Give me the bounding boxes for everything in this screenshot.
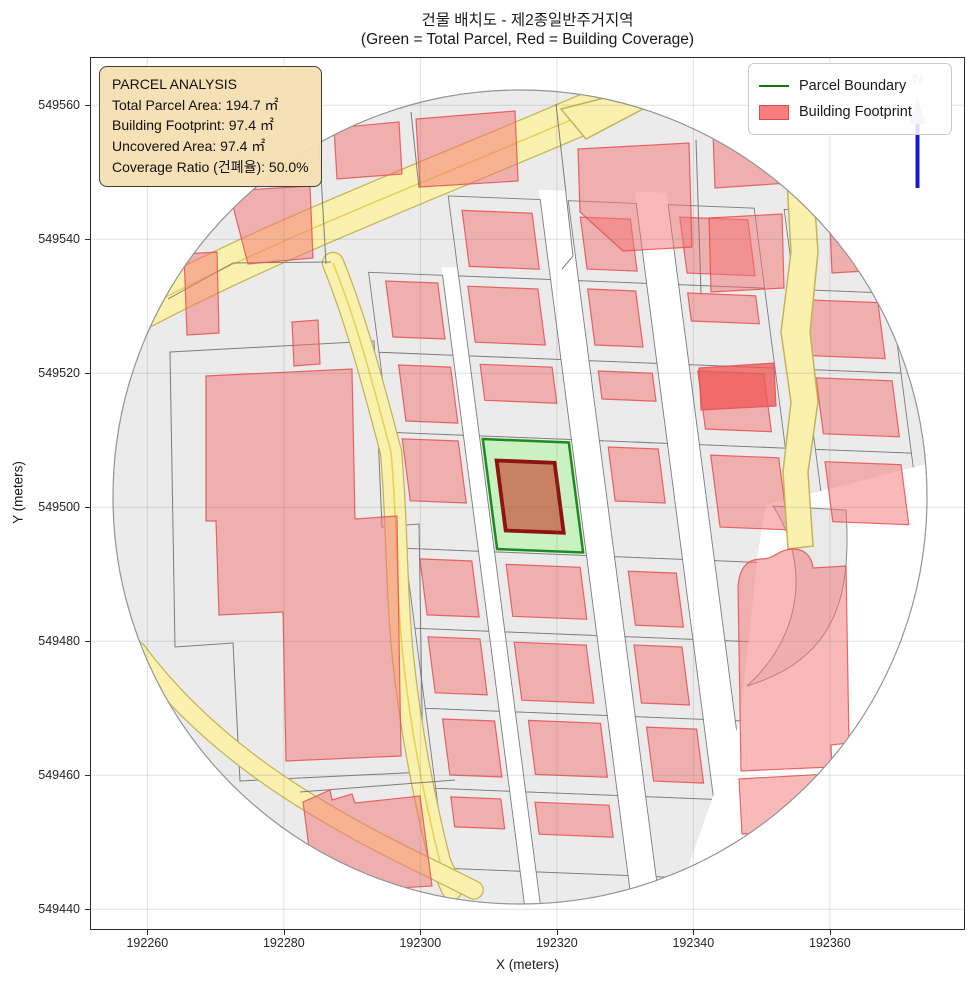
map-canvas: N xyxy=(91,58,964,929)
y-axis-label: Y (meters) xyxy=(11,448,26,538)
y-tick-label: 549560 xyxy=(28,98,80,112)
x-tick-label: 192280 xyxy=(263,936,305,950)
legend-label: Building Footprint xyxy=(799,104,912,120)
legend-item-building-footprint: Building Footprint xyxy=(759,99,941,125)
plot-subtitle: (Green = Total Parcel, Red = Building Co… xyxy=(90,31,965,49)
plot-area: N xyxy=(90,57,965,930)
y-tick-mark xyxy=(85,775,90,776)
x-tick-mark xyxy=(693,930,694,935)
y-tick-label: 549500 xyxy=(28,500,80,514)
x-tick-label: 192300 xyxy=(399,936,441,950)
analysis-line-coverage: Coverage Ratio (건폐율): 50.0% xyxy=(112,157,309,178)
analysis-line-title: PARCEL ANALYSIS xyxy=(112,74,309,95)
y-tick-label: 549460 xyxy=(28,768,80,782)
x-tick-label: 192360 xyxy=(809,936,851,950)
y-tick-mark xyxy=(85,239,90,240)
building-footprint-patch-swatch xyxy=(759,105,789,120)
x-tick-mark xyxy=(284,930,285,935)
x-tick-label: 192260 xyxy=(126,936,168,950)
parcel-analysis-box: PARCEL ANALYSIS Total Parcel Area: 194.7… xyxy=(99,66,322,187)
x-tick-mark xyxy=(420,930,421,935)
analysis-line-uncovered: Uncovered Area: 97.4 ㎡ xyxy=(112,136,309,157)
plot-title: 건물 배치도 - 제2종일반주거지역 xyxy=(90,8,965,30)
y-tick-label: 549540 xyxy=(28,232,80,246)
legend: Parcel Boundary Building Footprint xyxy=(748,63,952,135)
legend-item-parcel-boundary: Parcel Boundary xyxy=(759,73,941,99)
x-tick-mark xyxy=(147,930,148,935)
y-tick-label: 549480 xyxy=(28,634,80,648)
y-tick-mark xyxy=(85,507,90,508)
y-tick-mark xyxy=(85,909,90,910)
x-tick-mark xyxy=(830,930,831,935)
x-tick-label: 192320 xyxy=(536,936,578,950)
y-tick-mark xyxy=(85,641,90,642)
parcel-boundary-line-swatch xyxy=(759,85,789,87)
y-tick-label: 549440 xyxy=(28,902,80,916)
analysis-line-total: Total Parcel Area: 194.7 ㎡ xyxy=(112,95,309,116)
y-tick-label: 549520 xyxy=(28,366,80,380)
x-axis-label: X (meters) xyxy=(90,957,965,972)
x-tick-label: 192340 xyxy=(672,936,714,950)
x-tick-mark xyxy=(557,930,558,935)
analysis-line-footprint: Building Footprint: 97.4 ㎡ xyxy=(112,115,309,136)
y-tick-mark xyxy=(85,105,90,106)
y-tick-mark xyxy=(85,373,90,374)
figure: 건물 배치도 - 제2종일반주거지역 (Green = Total Parcel… xyxy=(0,0,972,990)
legend-label: Parcel Boundary xyxy=(799,78,906,94)
